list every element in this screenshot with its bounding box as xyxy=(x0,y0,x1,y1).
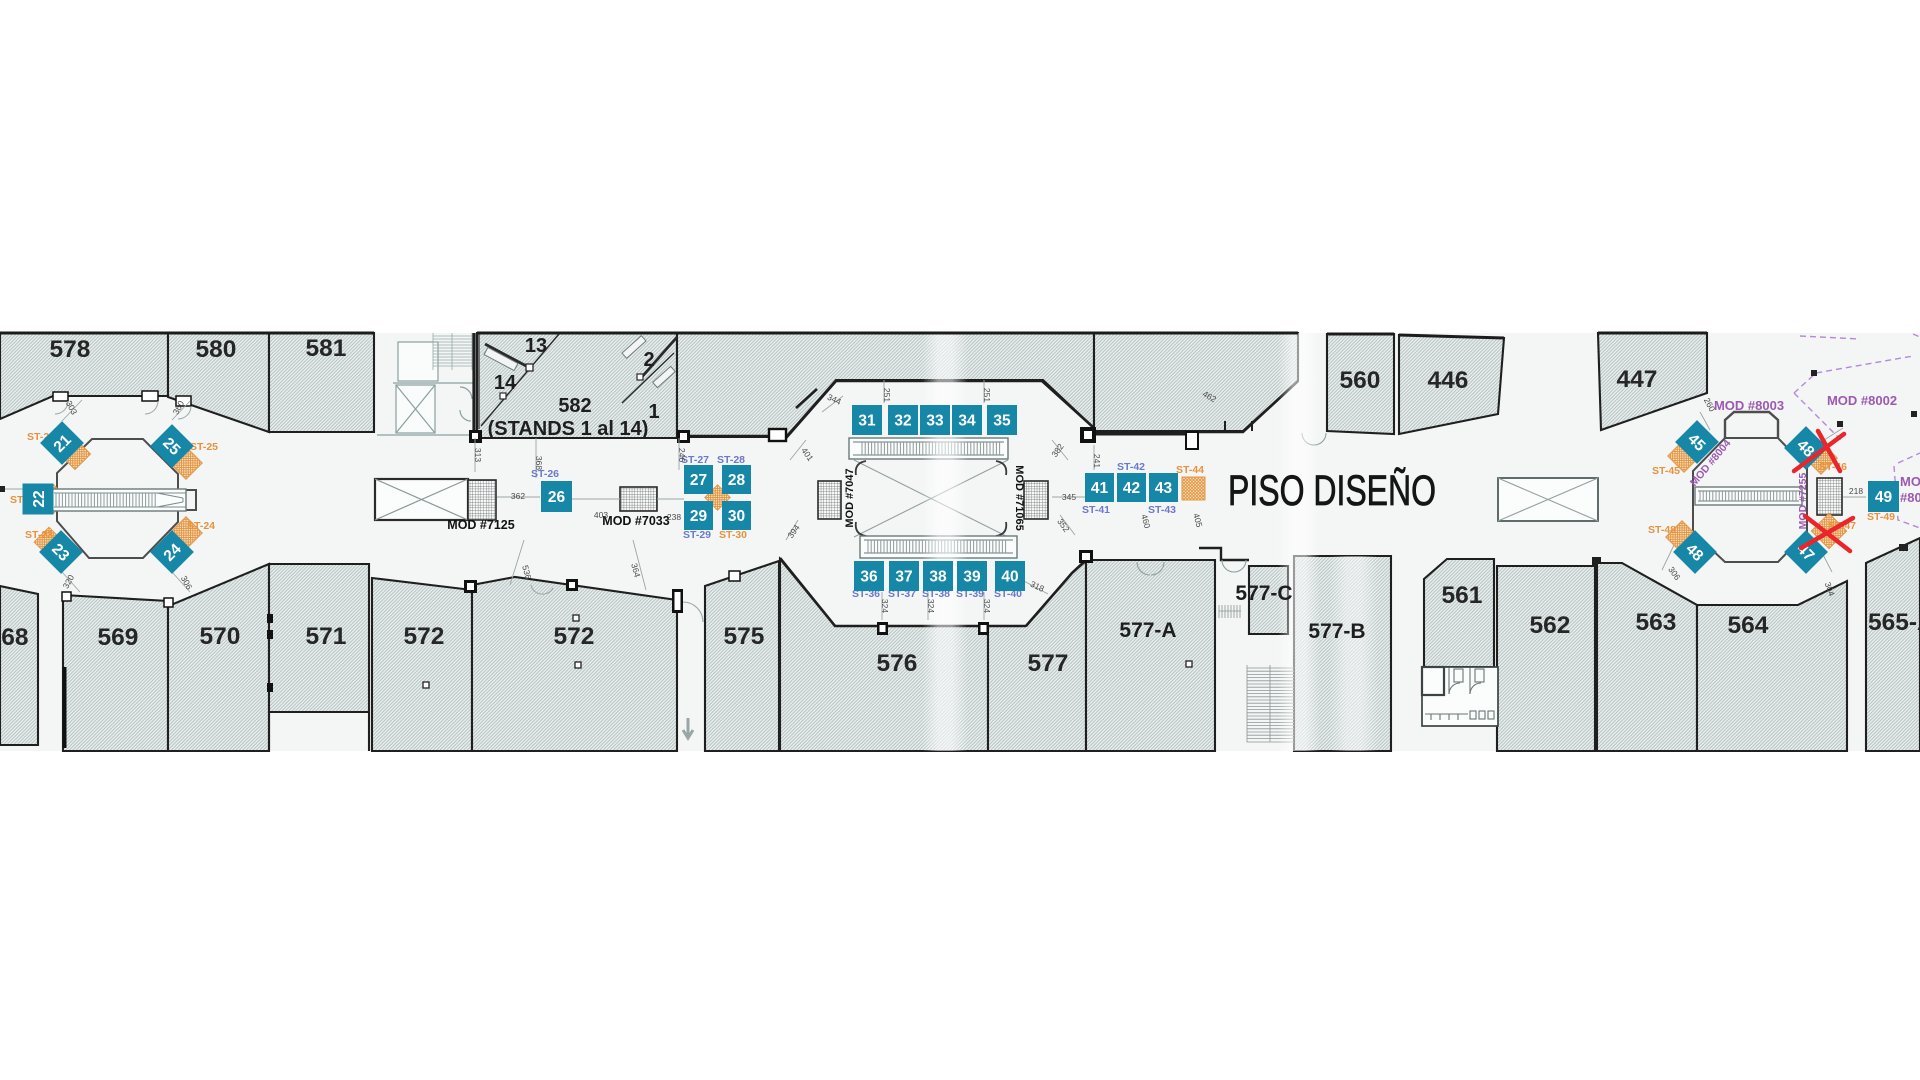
svg-text:MOD #8002: MOD #8002 xyxy=(1827,393,1897,408)
svg-text:42: 42 xyxy=(1123,480,1140,497)
svg-text:PISO DISEÑO: PISO DISEÑO xyxy=(1228,467,1436,515)
svg-text:561: 561 xyxy=(1442,582,1483,609)
svg-text:35: 35 xyxy=(993,413,1011,430)
svg-text:578: 578 xyxy=(50,336,91,363)
svg-text:13: 13 xyxy=(525,335,547,357)
svg-text:#80: #80 xyxy=(1900,490,1920,505)
svg-text:(STANDS 1 al 14): (STANDS 1 al 14) xyxy=(488,418,649,440)
svg-text:36: 36 xyxy=(860,569,878,586)
svg-text:29: 29 xyxy=(690,508,708,525)
svg-text:39: 39 xyxy=(963,569,981,586)
svg-text:38: 38 xyxy=(929,569,947,586)
svg-text:ST-28: ST-28 xyxy=(717,454,745,466)
svg-text:246: 246 xyxy=(677,448,687,462)
svg-text:345: 345 xyxy=(1062,492,1076,502)
svg-text:251: 251 xyxy=(882,388,892,402)
svg-text:27: 27 xyxy=(690,472,707,489)
svg-text:MOD #71065: MOD #71065 xyxy=(1013,465,1025,530)
svg-text:577-C: 577-C xyxy=(1235,582,1292,605)
svg-text:MO: MO xyxy=(1900,474,1920,489)
svg-text:569: 569 xyxy=(98,624,139,651)
svg-text:571: 571 xyxy=(306,623,347,650)
svg-text:368: 368 xyxy=(534,456,544,470)
svg-text:ST-43: ST-43 xyxy=(1148,504,1176,516)
svg-text:403: 403 xyxy=(594,510,608,520)
svg-text:581: 581 xyxy=(306,335,347,362)
svg-text:MOD #7047: MOD #7047 xyxy=(844,468,856,527)
svg-text:580: 580 xyxy=(196,336,237,363)
svg-text:ST-49: ST-49 xyxy=(1867,511,1895,523)
svg-text:565-A: 565-A xyxy=(1868,609,1920,636)
svg-text:324: 324 xyxy=(880,599,890,613)
svg-text:43: 43 xyxy=(1155,480,1173,497)
svg-text:ST-42: ST-42 xyxy=(1117,461,1145,473)
svg-text:563: 563 xyxy=(1636,609,1677,636)
svg-text:ST-29: ST-29 xyxy=(683,529,711,541)
svg-text:ST-48: ST-48 xyxy=(1648,524,1676,536)
svg-text:568: 568 xyxy=(0,624,28,651)
svg-text:1: 1 xyxy=(648,401,659,423)
svg-text:577-A: 577-A xyxy=(1119,619,1176,642)
svg-text:MOD #7255: MOD #7255 xyxy=(1797,473,1809,530)
svg-text:218: 218 xyxy=(1849,486,1863,496)
svg-text:32: 32 xyxy=(894,413,911,430)
svg-text:40: 40 xyxy=(1001,569,1018,586)
svg-text:570: 570 xyxy=(200,623,241,650)
svg-text:22: 22 xyxy=(31,490,48,507)
svg-text:30: 30 xyxy=(728,508,745,525)
svg-text:26: 26 xyxy=(548,489,566,506)
svg-text:575: 575 xyxy=(724,623,765,650)
svg-text:313: 313 xyxy=(473,448,483,462)
svg-text:MOD #7125: MOD #7125 xyxy=(447,518,514,532)
svg-text:577-B: 577-B xyxy=(1308,620,1365,643)
svg-text:241: 241 xyxy=(1092,454,1102,468)
svg-text:324: 324 xyxy=(982,599,992,613)
svg-text:447: 447 xyxy=(1617,366,1658,393)
svg-text:34: 34 xyxy=(958,413,976,430)
svg-text:ST-23: ST-23 xyxy=(25,529,53,541)
svg-text:ST-24: ST-24 xyxy=(187,520,215,532)
svg-text:ST-30: ST-30 xyxy=(719,529,747,541)
svg-text:ST-25: ST-25 xyxy=(190,441,218,453)
svg-text:2: 2 xyxy=(643,349,654,371)
svg-text:MOD #8003: MOD #8003 xyxy=(1714,398,1784,413)
svg-text:ST-45: ST-45 xyxy=(1652,465,1680,477)
svg-text:564: 564 xyxy=(1728,612,1769,639)
svg-text:33: 33 xyxy=(926,413,944,430)
svg-text:ST-44: ST-44 xyxy=(1176,464,1204,476)
svg-text:362: 362 xyxy=(511,491,525,501)
svg-text:324: 324 xyxy=(926,599,936,613)
svg-text:14: 14 xyxy=(494,372,517,394)
svg-text:49: 49 xyxy=(1875,489,1893,506)
svg-text:ST-41: ST-41 xyxy=(1082,504,1110,516)
svg-text:37: 37 xyxy=(895,569,912,586)
svg-text:576: 576 xyxy=(877,650,918,677)
svg-text:572: 572 xyxy=(404,623,445,650)
svg-text:41: 41 xyxy=(1091,480,1109,497)
svg-text:251: 251 xyxy=(982,388,992,402)
svg-text:577: 577 xyxy=(1028,650,1069,677)
svg-text:238: 238 xyxy=(667,512,681,522)
svg-text:446: 446 xyxy=(1428,367,1469,394)
svg-text:MOD #7033: MOD #7033 xyxy=(602,514,669,528)
svg-text:562: 562 xyxy=(1530,612,1571,639)
svg-text:582: 582 xyxy=(558,395,591,417)
svg-text:560: 560 xyxy=(1340,367,1381,394)
svg-text:31: 31 xyxy=(858,413,876,430)
svg-text:28: 28 xyxy=(728,472,746,489)
svg-text:572: 572 xyxy=(554,623,595,650)
